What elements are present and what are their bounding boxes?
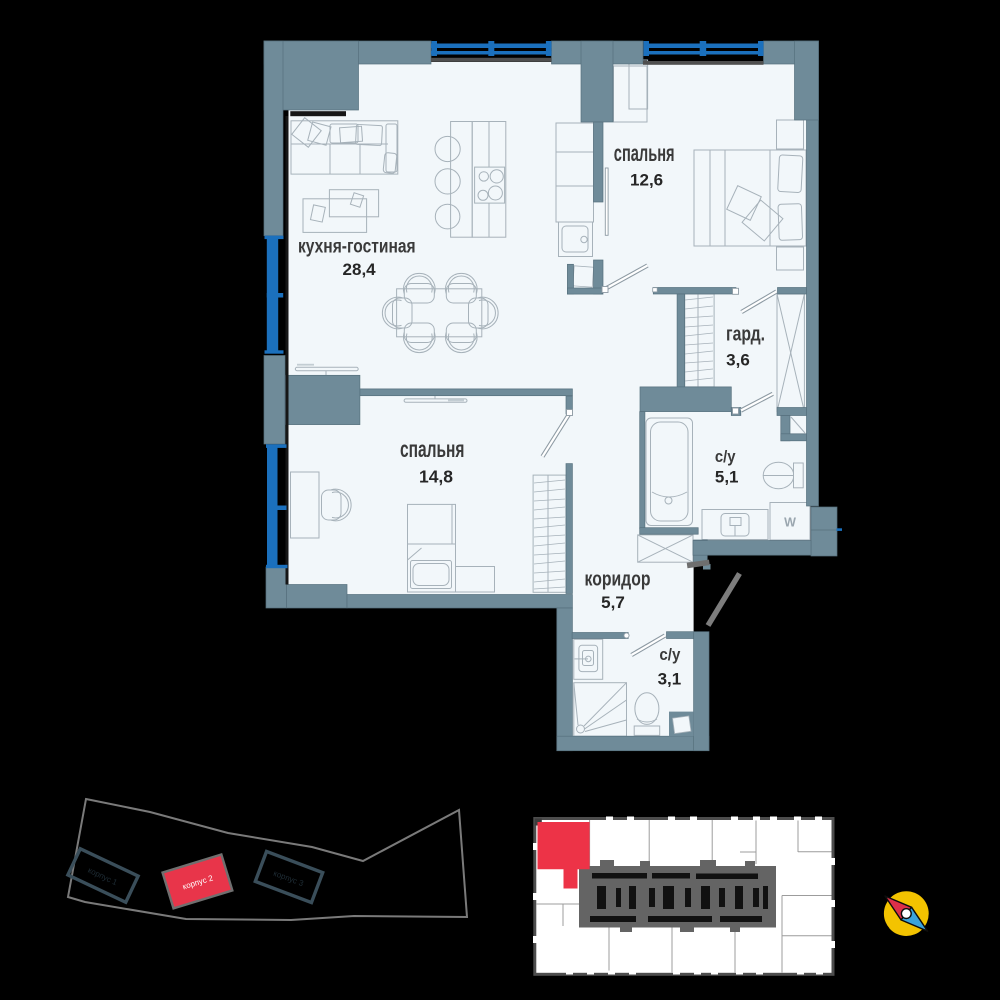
svg-text:14,8: 14,8: [419, 467, 453, 487]
svg-text:5,1: 5,1: [715, 468, 739, 487]
svg-text:W: W: [784, 516, 796, 530]
svg-text:12,6: 12,6: [630, 171, 663, 190]
svg-text:3,1: 3,1: [658, 670, 682, 689]
svg-text:5,7: 5,7: [601, 593, 625, 612]
svg-text:гард.: гард.: [726, 324, 765, 346]
svg-text:3,6: 3,6: [726, 351, 750, 370]
svg-text:с/у: с/у: [659, 645, 680, 664]
svg-text:спальня: спальня: [614, 140, 675, 166]
svg-text:кухня-гостиная: кухня-гостиная: [298, 237, 416, 258]
svg-text:коридор: коридор: [585, 569, 651, 591]
svg-text:28,4: 28,4: [343, 260, 377, 279]
svg-text:спальня: спальня: [400, 436, 465, 462]
svg-text:с/у: с/у: [715, 447, 736, 466]
